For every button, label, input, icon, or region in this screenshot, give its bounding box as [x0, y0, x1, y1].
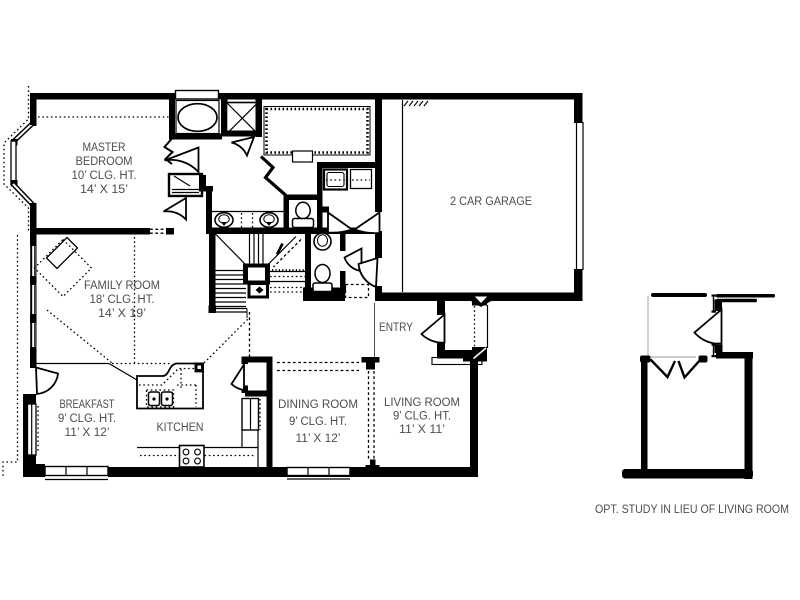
svg-text:KITCHEN: KITCHEN: [157, 422, 204, 434]
svg-text:18’ CLG. HT.: 18’ CLG. HT.: [90, 294, 155, 306]
svg-text:9’ CLG. HT.: 9’ CLG. HT.: [393, 411, 451, 423]
svg-text:MASTER: MASTER: [83, 142, 126, 154]
svg-text:2 CAR GARAGE: 2 CAR GARAGE: [450, 196, 532, 208]
svg-text:BREAKFAST: BREAKFAST: [60, 399, 115, 411]
svg-text:9’ CLG. HT.: 9’ CLG. HT.: [58, 413, 116, 425]
svg-text:9’ CLG. HT.: 9’ CLG. HT.: [289, 416, 347, 428]
svg-text:14’ X 19’: 14’ X 19’: [98, 308, 146, 320]
svg-text:ENTRY: ENTRY: [379, 322, 413, 334]
svg-text:FAMILY ROOM: FAMILY ROOM: [84, 280, 160, 292]
svg-text:11’ X 11’: 11’ X 11’: [399, 424, 445, 436]
svg-text:LIVING ROOM: LIVING ROOM: [384, 397, 460, 409]
svg-text:14’ X 15’: 14’ X 15’: [80, 184, 128, 196]
svg-text:10’ CLG. HT.: 10’ CLG. HT.: [72, 170, 137, 182]
svg-text:OPT. STUDY IN LIEU OF LIVING R: OPT. STUDY IN LIEU OF LIVING ROOM: [595, 504, 789, 516]
svg-text:BEDROOM: BEDROOM: [76, 156, 133, 168]
svg-text:11’ X 12’: 11’ X 12’: [65, 427, 110, 439]
svg-text:DINING ROOM: DINING ROOM: [278, 399, 358, 411]
svg-text:11’ X 12’: 11’ X 12’: [296, 433, 341, 445]
